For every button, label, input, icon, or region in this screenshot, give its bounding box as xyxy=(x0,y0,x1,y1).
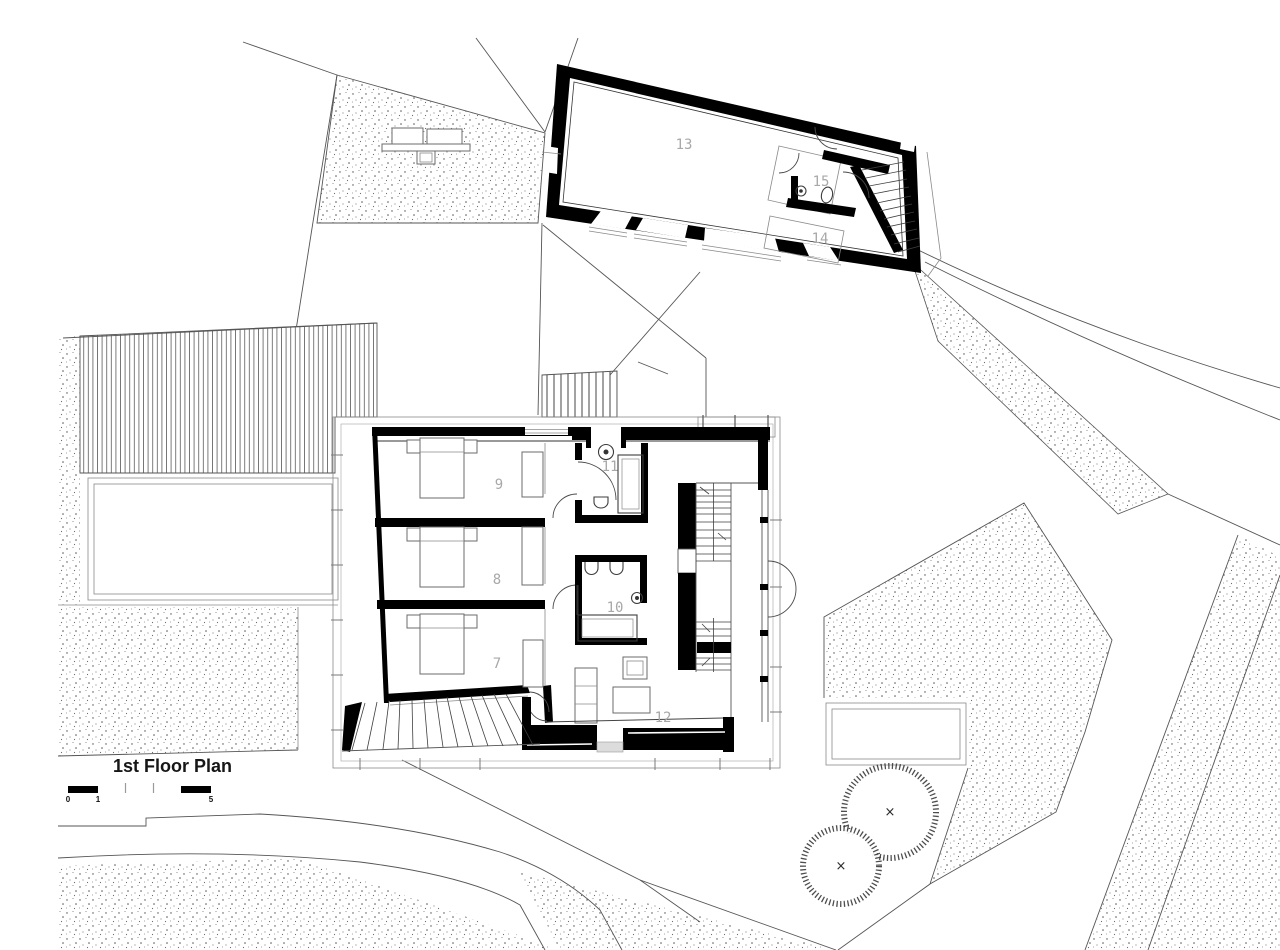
room-label-8: 8 xyxy=(493,572,501,588)
exterior-stair-upper xyxy=(542,371,617,417)
floor-plan-sheet: × × 9 8 7 10 11 12 13 14 15 1st Floor Pl… xyxy=(0,0,1280,950)
staircase xyxy=(678,483,758,672)
entrance-wall xyxy=(731,437,796,722)
tree-center-mark: × xyxy=(885,805,896,820)
floor-plan-drawing: × × 9 8 7 10 11 12 13 14 15 1st Floor Pl… xyxy=(0,0,1280,950)
deck-area xyxy=(63,323,377,473)
tree-center-mark: × xyxy=(836,859,847,874)
main-building xyxy=(342,427,796,752)
bed-room-7 xyxy=(407,614,477,674)
room-label-15: 15 xyxy=(813,174,830,190)
bed-room-9 xyxy=(407,438,477,498)
upper-building xyxy=(542,64,921,273)
scale-bar: 0 1 5 xyxy=(66,783,214,804)
room-label-9: 9 xyxy=(495,477,503,493)
title-block: 1st Floor Plan xyxy=(113,756,232,776)
page-title: 1st Floor Plan xyxy=(113,756,232,776)
room-label-10: 10 xyxy=(607,600,624,616)
room-label-14: 14 xyxy=(812,231,829,247)
room-label-13: 13 xyxy=(676,137,693,153)
room-label-12: 12 xyxy=(655,710,672,726)
pool xyxy=(88,478,338,600)
scale-label-5: 5 xyxy=(209,795,214,804)
scale-bar-segment xyxy=(68,786,98,793)
exterior-stair-lower xyxy=(342,694,540,752)
main-terrace xyxy=(331,415,782,770)
room-label-11: 11 xyxy=(602,459,619,475)
scale-bar-segment xyxy=(181,786,211,793)
bathroom-11 xyxy=(575,443,648,523)
tree-icon: × xyxy=(803,828,879,904)
bed-room-8 xyxy=(407,527,477,587)
scale-label-1: 1 xyxy=(96,795,101,804)
room-label-7: 7 xyxy=(493,656,501,672)
scale-label-0: 0 xyxy=(66,795,71,804)
